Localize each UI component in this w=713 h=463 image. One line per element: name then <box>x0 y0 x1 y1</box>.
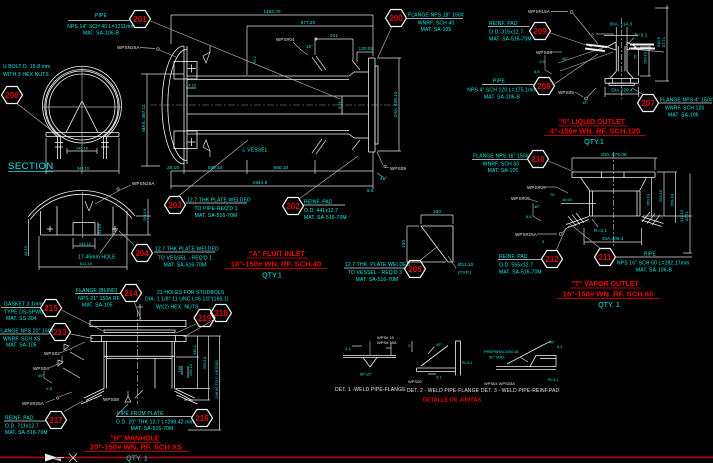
svg-text:25.10: 25.10 <box>167 165 179 170</box>
svg-text:150.10: 150.10 <box>643 51 648 64</box>
svg-text:MAT. SA-516-70M: MAT. SA-516-70M <box>195 213 238 219</box>
svg-text:WPS05: WPS05 <box>558 90 574 95</box>
svg-text:WPS09: WPS09 <box>408 379 422 384</box>
svg-text:MAT. SA-105: MAT. SA-105 <box>488 168 519 174</box>
svg-text:DETALLE DE JUNTAS: DETALLE DE JUNTAS <box>423 398 481 404</box>
svg-text:GASKET 3.1mm: GASKET 3.1mm <box>4 302 43 308</box>
svg-text:54.10: 54.10 <box>97 223 102 234</box>
svg-text:218: 218 <box>214 309 228 318</box>
svg-text:580.10: 580.10 <box>208 165 223 170</box>
svg-text:6.5: 6.5 <box>526 214 532 219</box>
svg-text:NPS 21" 150# RF.: NPS 21" 150# RF. <box>78 296 121 302</box>
svg-text:R=3.1: R=3.1 <box>462 360 474 365</box>
svg-text:44.10: 44.10 <box>23 245 28 256</box>
svg-text:45°: 45° <box>38 373 44 378</box>
svg-text:140.10: 140.10 <box>76 146 89 151</box>
svg-text:WPS#09: WPS#09 <box>511 196 530 201</box>
svg-text:254.10: 254.10 <box>142 208 147 221</box>
svg-text:REINF. PAD: REINF. PAD <box>304 200 333 206</box>
svg-text:206: 206 <box>5 91 19 100</box>
svg-text:MAT. SA-516-70M: MAT. SA-516-70M <box>304 215 347 221</box>
svg-text:200: 200 <box>389 14 403 23</box>
svg-text:298.42 TO ℒ VESSEL: 298.42 TO ℒ VESSEL <box>214 359 219 399</box>
svg-text:AT.TL: AT.TL <box>684 210 689 221</box>
svg-text:WPS02: WPS02 <box>44 351 60 356</box>
svg-text:WPSN25A: WPSN25A <box>117 45 140 50</box>
svg-text:REINF. PAD: REINF. PAD <box>5 416 34 422</box>
svg-text:REINF. PAD: REINF. PAD <box>489 21 518 27</box>
svg-text:WITH 3 HEX NUTS: WITH 3 HEX NUTS <box>3 72 49 78</box>
svg-text:75: 75 <box>633 54 638 59</box>
svg-text:Ø11.10: Ø11.10 <box>458 262 474 267</box>
svg-text:30° MAX: 30° MAX <box>489 355 505 360</box>
svg-text:R=3.1: R=3.1 <box>548 377 560 382</box>
svg-text:144.10: 144.10 <box>79 241 92 246</box>
svg-text:208: 208 <box>537 82 551 91</box>
svg-text:100: 100 <box>433 209 441 214</box>
svg-text:150.10: 150.10 <box>646 193 651 206</box>
svg-text:977.20: 977.20 <box>301 20 316 25</box>
svg-text:15°: 15° <box>582 100 588 105</box>
svg-text:611.10: 611.10 <box>80 261 93 266</box>
svg-text:15°: 15° <box>306 44 313 49</box>
svg-text:6.5: 6.5 <box>534 69 540 74</box>
svg-text:45°: 45° <box>549 340 555 345</box>
svg-text:NPS 14" SCH 40 L=1211mm: NPS 14" SCH 40 L=1211mm <box>67 24 135 30</box>
svg-text:FLANGE (BLIND): FLANGE (BLIND) <box>76 288 118 294</box>
svg-text:45°: 45° <box>534 204 540 209</box>
svg-text:NPS 4" SCH 120 L=175.1mm: NPS 4" SCH 120 L=175.1mm <box>467 88 536 94</box>
svg-text:14.10: 14.10 <box>186 83 197 88</box>
svg-text:AT.TL: AT.TL <box>661 36 666 47</box>
svg-text:WPS04: WPS04 <box>33 366 49 371</box>
svg-text:12.7 THK PLATE WELDED: 12.7 THK PLATE WELDED <box>155 247 219 253</box>
svg-text:1944.8: 1944.8 <box>253 180 268 185</box>
svg-text:R=3.1: R=3.1 <box>594 228 607 233</box>
svg-text:(TYP.): (TYP.) <box>458 270 472 275</box>
svg-text:3.1: 3.1 <box>345 346 351 351</box>
svg-text:O.D. 315x12.7: O.D. 315x12.7 <box>489 30 523 36</box>
svg-text:168: 168 <box>177 365 182 372</box>
svg-text:"H" MANHOLE: "H" MANHOLE <box>110 436 159 443</box>
svg-text:WPS08: WPS08 <box>103 397 119 402</box>
svg-text:PIPE FROM PLATE: PIPE FROM PLATE <box>117 411 164 417</box>
svg-text:4"-150# WN. RF. SCH.120: 4"-150# WN. RF. SCH.120 <box>550 127 641 136</box>
svg-text:NPS 16" SCH 60 L=282.17mm: NPS 16" SCH 60 L=282.17mm <box>617 261 689 267</box>
svg-text:PREPARACION 16: PREPARACION 16 <box>484 349 519 354</box>
svg-text:210: 210 <box>531 155 545 164</box>
svg-text:X.5: X.5 <box>46 386 53 391</box>
svg-text:MAT. SA-105: MAT. SA-105 <box>82 303 113 309</box>
svg-text:207: 207 <box>641 99 655 108</box>
svg-text:WPS#25A: WPS#25A <box>22 401 45 406</box>
svg-text:213: 213 <box>53 328 67 337</box>
svg-text:MAT. SA-516-70M: MAT. SA-516-70M <box>489 37 532 43</box>
svg-text:WPS# 15A: WPS# 15A <box>377 340 397 345</box>
svg-text:FLANGE NPS 18" 150#: FLANGE NPS 18" 150# <box>408 13 464 19</box>
svg-text:254.10: 254.10 <box>670 193 675 206</box>
svg-text:O.D. 555x12.7: O.D. 555x12.7 <box>499 263 533 269</box>
svg-text:MAT. SS-304: MAT. SS-304 <box>6 316 37 322</box>
svg-text:344.10: 344.10 <box>77 166 90 171</box>
svg-text:214: 214 <box>124 289 138 298</box>
svg-text:204: 204 <box>135 249 149 258</box>
svg-text:MAT. SA-106-B: MAT. SA-106-B <box>83 31 120 37</box>
svg-text:201: 201 <box>133 15 147 24</box>
svg-text:16.64: 16.64 <box>562 197 573 202</box>
svg-text:TYPE DS-SPWD: TYPE DS-SPWD <box>4 310 44 316</box>
svg-text:O.D. 441x12.7: O.D. 441x12.7 <box>304 208 338 214</box>
svg-text:3.1: 3.1 <box>436 375 442 380</box>
svg-text:PIPE: PIPE <box>95 13 108 19</box>
svg-text:ℒ VESSEL: ℒ VESSEL <box>242 148 268 154</box>
svg-text:50°±5°: 50°±5° <box>360 372 372 377</box>
svg-text:158.10: 158.10 <box>188 363 193 376</box>
svg-text:18"-150# WN. RF. SCH.40: 18"-150# WN. RF. SCH.40 <box>231 260 322 269</box>
svg-text:12.7 THK. PLATE WELDED: 12.7 THK. PLATE WELDED <box>345 262 411 268</box>
svg-text:O.D. 711x12.7: O.D. 711x12.7 <box>5 424 39 430</box>
svg-text:DIA. 635.10: DIA. 635.10 <box>393 91 398 117</box>
svg-text:DIA. 576.08: DIA. 576.08 <box>601 152 627 157</box>
svg-text:212: 212 <box>545 255 559 264</box>
svg-text:FLANGE NPS 16" 150#: FLANGE NPS 16" 150# <box>473 154 529 160</box>
svg-text:TO VESSEL - REQ'D 3: TO VESSEL - REQ'D 3 <box>348 270 402 276</box>
svg-text:WPSN25A: WPSN25A <box>132 181 155 186</box>
svg-text:DET. 1 -WELD PIPE-FLANGE: DET. 1 -WELD PIPE-FLANGE <box>335 387 406 393</box>
svg-text:45°: 45° <box>436 342 442 347</box>
svg-text:100: 100 <box>401 240 406 248</box>
svg-text:9.41: 9.41 <box>337 100 342 109</box>
svg-text:WPS09: WPS09 <box>390 166 406 171</box>
svg-text:345.1: 345.1 <box>192 344 197 355</box>
svg-text:MAT. SA-105: MAT. SA-105 <box>668 113 699 119</box>
svg-text:DIA.406.4: DIA.406.4 <box>602 236 624 241</box>
svg-text:FLANGE NPS 20" 150#: FLANGE NPS 20" 150# <box>0 329 54 335</box>
svg-text:W/(2) HEX. NUTS: W/(2) HEX. NUTS <box>156 305 199 311</box>
svg-text:PIPE: PIPE <box>493 79 506 85</box>
svg-text:341: 341 <box>330 33 338 38</box>
svg-text:FLANGE NPS 4" 150#: FLANGE NPS 4" 150# <box>660 98 713 104</box>
svg-text:WNRF. SCH 60: WNRF. SCH 60 <box>483 162 520 168</box>
svg-text:MAT. SA-516-70M: MAT. SA-516-70M <box>164 263 207 269</box>
svg-text:12.7 THK PLATE WELDED: 12.7 THK PLATE WELDED <box>187 198 251 204</box>
svg-text:WPS#09: WPS#09 <box>527 185 546 190</box>
svg-text:45°: 45° <box>562 56 568 61</box>
svg-text:DIA.229.4: DIA.229.4 <box>611 88 633 93</box>
svg-text:"T" VAPOR OUTLET: "T" VAPOR OUTLET <box>571 281 639 288</box>
svg-text:U BOLT D. 15.8 mm: U BOLT D. 15.8 mm <box>3 64 50 70</box>
svg-text:REINF. PAD: REINF. PAD <box>499 254 528 260</box>
svg-text:TO PIPE-REQ'D 1: TO PIPE-REQ'D 1 <box>194 206 237 212</box>
svg-text:MAT. SA-516-70M: MAT. SA-516-70M <box>131 426 174 432</box>
svg-text:211: 211 <box>599 253 612 262</box>
svg-text:21 HOLES FOR STUDBOLS: 21 HOLES FOR STUDBOLS <box>157 290 225 296</box>
svg-text:76.2: 76.2 <box>252 55 257 64</box>
svg-text:WPS06: WPS06 <box>536 50 552 55</box>
svg-text:WPS#04: WPS#04 <box>276 37 295 42</box>
svg-text:580.10: 580.10 <box>274 165 289 170</box>
svg-text:O.D. 20" THK 12.7 L=298.42 mm: O.D. 20" THK 12.7 L=298.42 mm <box>116 420 194 426</box>
svg-text:1.5: 1.5 <box>539 59 545 64</box>
svg-text:PIPE: PIPE <box>644 252 657 258</box>
svg-text:WPS#15A: WPS#15A <box>528 9 551 14</box>
svg-text:MAX. 457.11: MAX. 457.11 <box>141 104 146 132</box>
svg-text:202: 202 <box>286 202 300 211</box>
svg-text:WNRF. SCH 40: WNRF. SCH 40 <box>418 21 455 27</box>
svg-text:216: 216 <box>195 414 209 423</box>
svg-text:MAT. SA-106-B: MAT. SA-106-B <box>636 268 673 274</box>
svg-text:DET. 2 - WELD PIPE-FLANGE: DET. 2 - WELD PIPE-FLANGE <box>407 388 480 394</box>
svg-text:MAT. SA-106-B: MAT. SA-106-B <box>484 95 521 101</box>
svg-text:WPS#25A: WPS#25A <box>515 232 538 237</box>
svg-text:"5" LIQUID OUTLET: "5" LIQUID OUTLET <box>559 119 626 126</box>
svg-text:DET. 3 - WELD PIPE-REINF.PAD: DET. 3 - WELD PIPE-REINF.PAD <box>481 388 560 394</box>
svg-text:217: 217 <box>49 416 63 425</box>
svg-text:QTY. 1: QTY. 1 <box>598 300 620 309</box>
svg-text:SECTION: SECTION <box>8 161 54 172</box>
svg-text:MAT. SA-516-70M: MAT. SA-516-70M <box>499 270 542 276</box>
svg-text:205: 205 <box>408 265 422 274</box>
svg-text:9.5: 9.5 <box>367 188 374 193</box>
svg-text:219: 219 <box>198 314 212 323</box>
svg-text:MAT. SA-105: MAT. SA-105 <box>6 343 37 349</box>
svg-text:QTY. 1: QTY. 1 <box>126 454 148 463</box>
svg-text:MAT. SA-105: MAT. SA-105 <box>421 27 452 33</box>
svg-text:"A" FLUIT INLET: "A" FLUIT INLET <box>249 251 305 258</box>
svg-text:3.1: 3.1 <box>557 344 563 349</box>
svg-text:MAT. SA-516-70M: MAT. SA-516-70M <box>356 277 399 283</box>
svg-text:WNRF. SCH 120: WNRF. SCH 120 <box>665 106 705 112</box>
svg-text:209: 209 <box>533 27 547 36</box>
svg-text:TO VESSEL - REQ'D 1: TO VESSEL - REQ'D 1 <box>158 256 212 262</box>
svg-text:DIA. 114.3: DIA. 114.3 <box>610 22 633 27</box>
svg-text:203.10: 203.10 <box>658 189 663 202</box>
svg-text:WPS04 WPS03A: WPS04 WPS03A <box>484 381 515 386</box>
svg-text:QTY.1: QTY.1 <box>262 271 282 280</box>
svg-text:17.46mm HOLE: 17.46mm HOLE <box>78 255 116 261</box>
svg-text:256.10: 256.10 <box>202 356 207 369</box>
svg-text:20"-150# WN. RF. SCH XS: 20"-150# WN. RF. SCH XS <box>90 443 182 452</box>
svg-text:120.51: 120.51 <box>359 46 374 51</box>
svg-text:QTY.1: QTY.1 <box>584 137 604 146</box>
svg-text:203: 203 <box>168 201 182 210</box>
svg-text:DIA. 1 1/8" 11 UNC L=6 1/2"(16: DIA. 1 1/8" 11 UNC L=6 1/2"(165.1) <box>145 297 229 303</box>
svg-text:75: 75 <box>550 192 555 197</box>
svg-text:16"-150# WN. RF. SCH.60: 16"-150# WN. RF. SCH.60 <box>563 290 654 299</box>
svg-text:1483.79: 1483.79 <box>263 9 281 14</box>
svg-text:R=3.1: R=3.1 <box>635 33 648 38</box>
svg-text:215: 215 <box>44 304 58 313</box>
svg-text:MAT. SA-516-70M: MAT. SA-516-70M <box>5 430 48 436</box>
svg-text:45°: 45° <box>380 176 387 181</box>
